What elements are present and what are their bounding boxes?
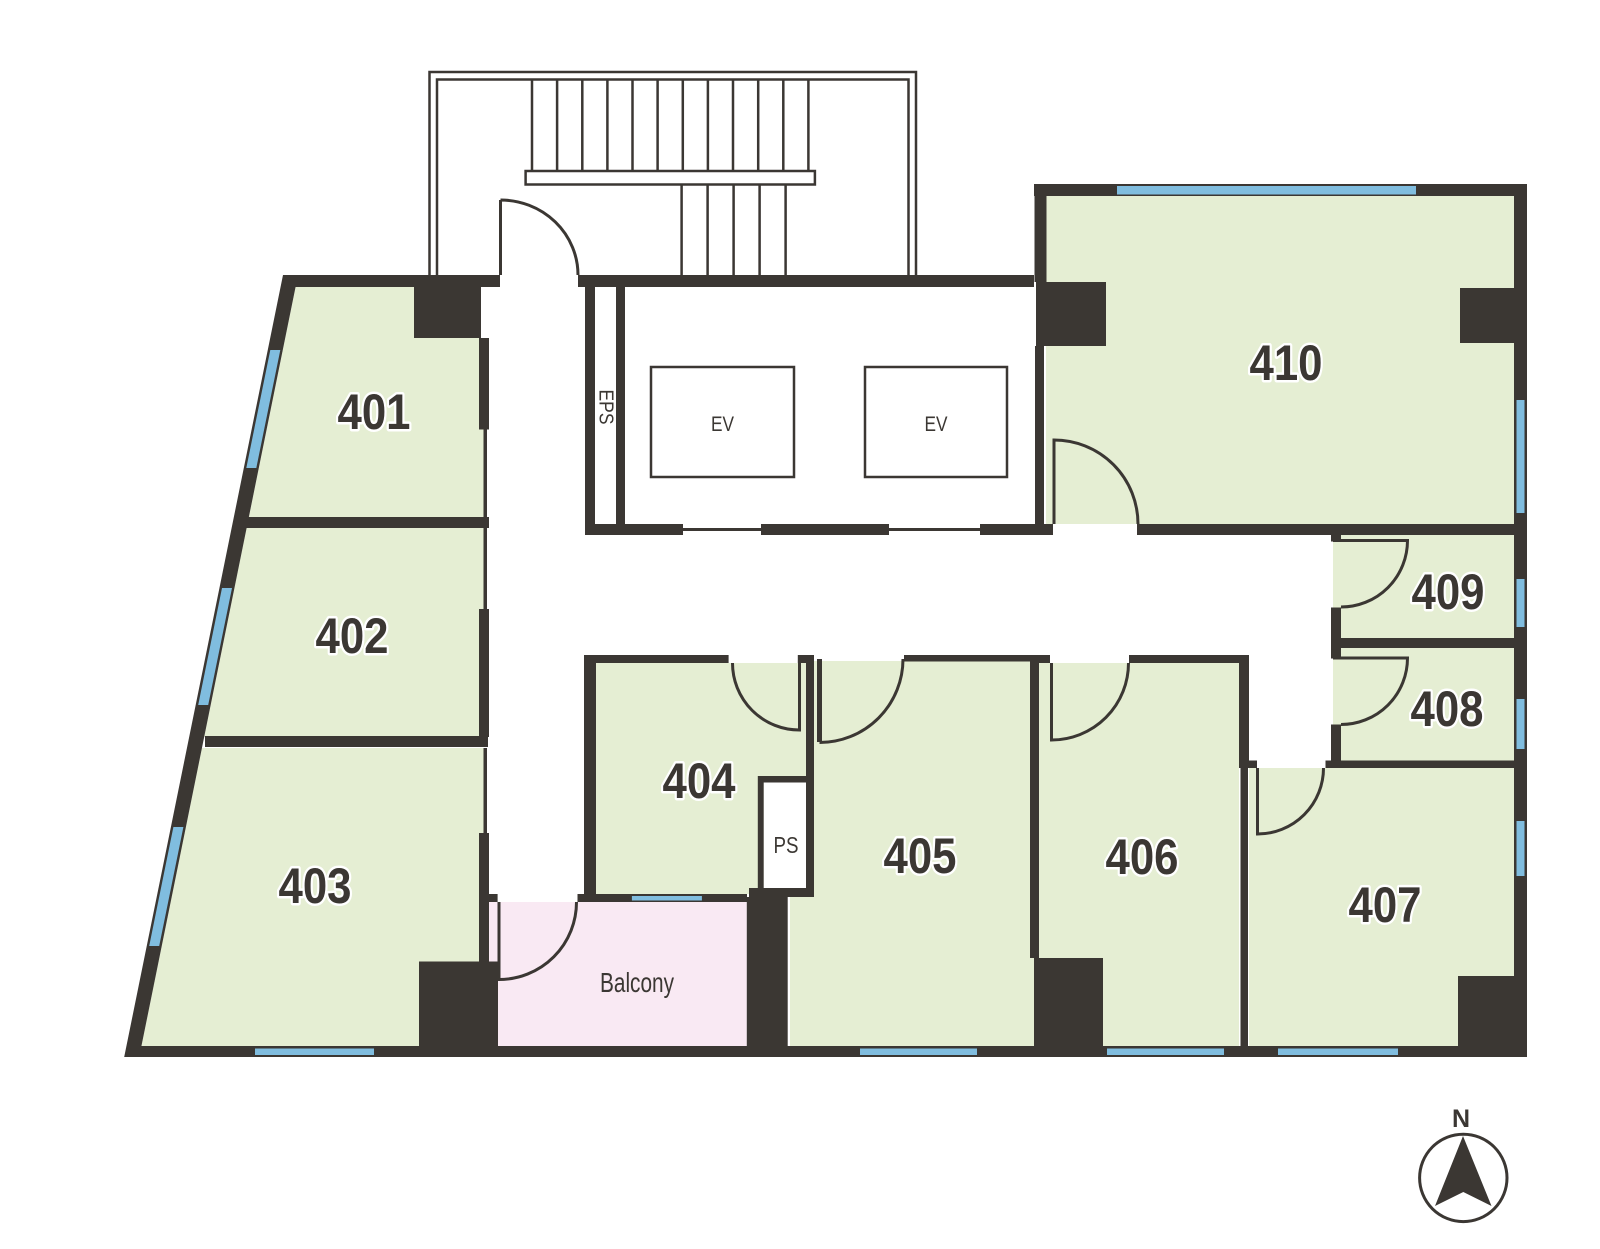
svg-text:409: 409 bbox=[1412, 564, 1485, 620]
svg-text:402: 402 bbox=[316, 608, 389, 664]
svg-text:405: 405 bbox=[884, 828, 957, 884]
svg-text:Balcony: Balcony bbox=[600, 967, 674, 998]
svg-text:N: N bbox=[1452, 1105, 1470, 1133]
svg-text:410: 410 bbox=[1250, 335, 1323, 391]
svg-text:PS: PS bbox=[774, 832, 799, 858]
svg-text:403: 403 bbox=[279, 858, 352, 914]
svg-text:401: 401 bbox=[338, 384, 411, 440]
svg-text:404: 404 bbox=[663, 753, 736, 809]
svg-text:408: 408 bbox=[1411, 681, 1484, 737]
svg-text:407: 407 bbox=[1349, 877, 1422, 933]
svg-text:406: 406 bbox=[1106, 829, 1179, 885]
svg-text:EV: EV bbox=[925, 413, 948, 436]
svg-text:EV: EV bbox=[711, 413, 734, 436]
svg-text:EPS: EPS bbox=[595, 390, 617, 425]
